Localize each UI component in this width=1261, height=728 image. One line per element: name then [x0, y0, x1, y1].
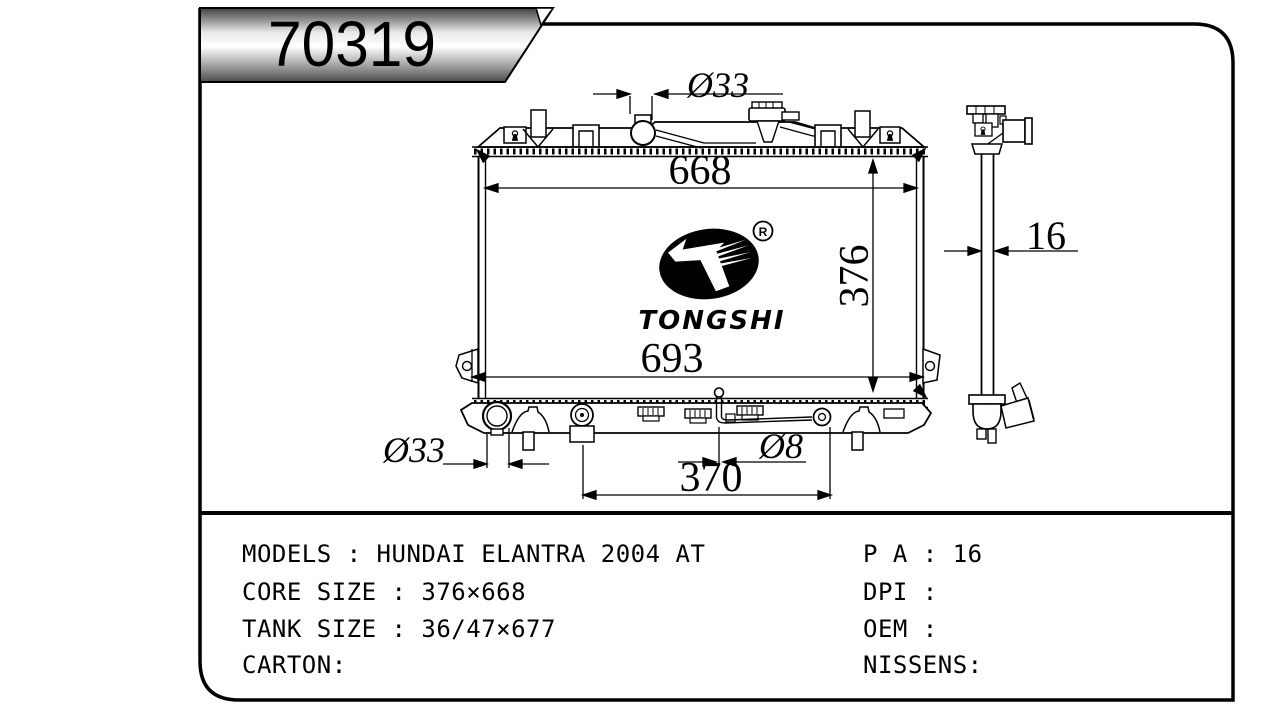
side-view-core	[982, 154, 994, 396]
bottom-tank	[461, 388, 931, 450]
brand-logo: R TONGSHI	[638, 222, 785, 337]
spec-nissens: NISSENS:	[863, 651, 983, 679]
dim-thickness-label: 16	[1026, 213, 1066, 258]
spec-carton: CARTON:	[242, 651, 347, 679]
dim-bottom-outlet-label: Ø33	[382, 430, 445, 470]
dim-core-width-label: 668	[669, 148, 732, 194]
svg-text:R: R	[759, 225, 768, 239]
spec-models: MODELS : HUNDAI ELANTRA 2004 AT	[242, 540, 705, 568]
dim-core-height-label: 376	[832, 245, 878, 308]
radiator-side-view	[967, 106, 1034, 443]
pipe-fitting	[570, 404, 594, 442]
registered-mark-icon: R	[754, 222, 773, 241]
spec-pa: P A : 16	[863, 540, 983, 568]
side-clip-right	[923, 349, 940, 383]
spec-oem: OEM :	[863, 615, 938, 643]
spec-tank-size: TANK SIZE : 36/47×677	[242, 615, 556, 643]
technical-drawing: 70319	[0, 0, 1261, 728]
part-number-banner: 70319	[200, 8, 553, 82]
dim-top-inlet-label: Ø33	[686, 65, 749, 105]
mount-tab-right	[855, 111, 870, 137]
side-view-bottom-tank	[969, 383, 1034, 443]
side-view-top-fitting	[967, 106, 1032, 154]
spec-dpi: DPI :	[863, 578, 938, 606]
top-tank	[478, 102, 924, 148]
brand-wordmark: TONGSHI	[638, 306, 785, 336]
part-number-text: 70319	[268, 8, 436, 80]
dim-overall-width-label: 693	[641, 336, 704, 382]
dim-core-height: 376	[832, 160, 878, 391]
radiator-spec-sheet: 70319	[0, 0, 1261, 728]
mount-tab-left	[531, 110, 546, 137]
dim-thickness: 16	[944, 213, 1078, 258]
spec-core-size: CORE SIZE : 376×668	[242, 578, 526, 606]
dim-core-width: 668	[485, 148, 917, 194]
inlet-neck-circle	[631, 121, 655, 145]
dim-drain-label: Ø8	[758, 426, 803, 466]
dim-bottom-span-label: 370	[680, 455, 743, 501]
